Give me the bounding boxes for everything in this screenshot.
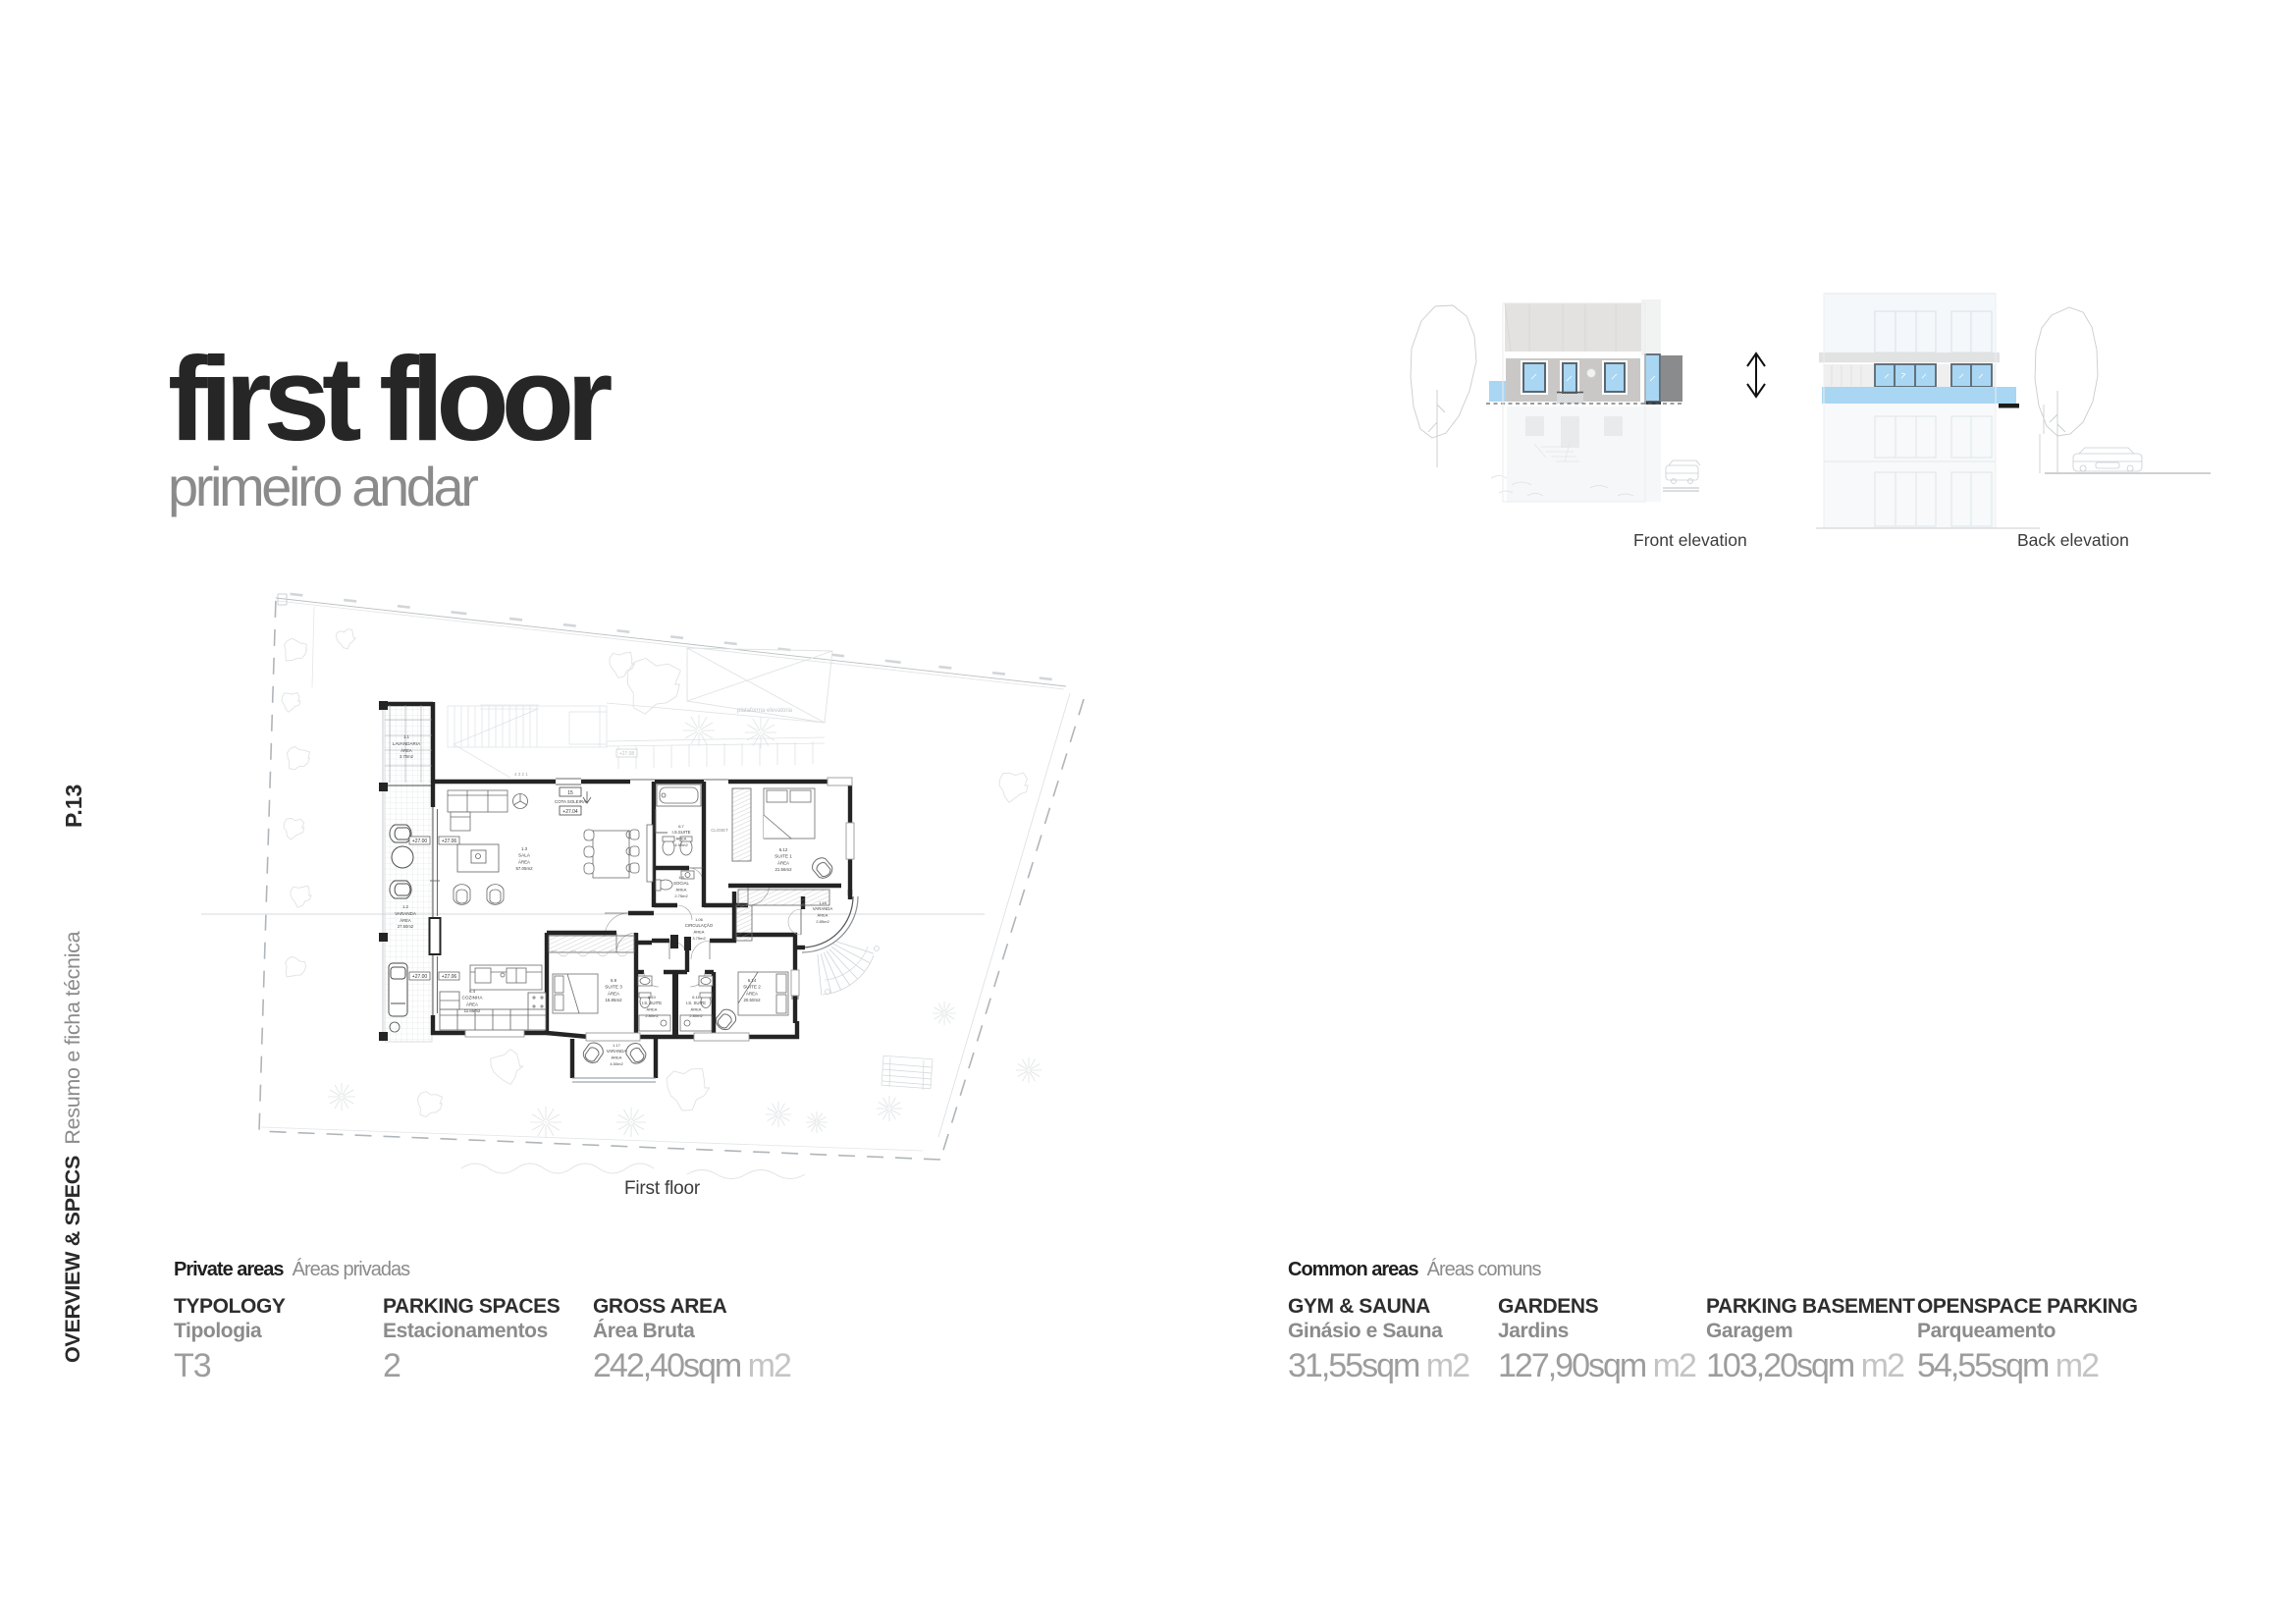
svg-text:+27.06: +27.06 <box>442 839 457 844</box>
svg-text:ÁREA: ÁREA <box>818 913 828 918</box>
svg-text:VARANDA: VARANDA <box>395 911 417 916</box>
svg-text:6.11: 6.11 <box>692 995 700 1000</box>
svg-text:ÁREA: ÁREA <box>676 837 687 841</box>
svg-text:20.50m2: 20.50m2 <box>743 998 761 1002</box>
svg-text:1.06: 1.06 <box>695 917 704 922</box>
svg-text:15.85m2: 15.85m2 <box>605 998 622 1002</box>
svg-text:+27.00: +27.00 <box>412 839 428 844</box>
svg-text:1.5: 1.5 <box>678 875 684 880</box>
svg-text:1.2: 1.2 <box>402 904 408 909</box>
svg-text:+27.04: +27.04 <box>562 809 578 815</box>
svg-text:4.50m2: 4.50m2 <box>610 1061 623 1066</box>
svg-text:1.16: 1.16 <box>819 900 828 905</box>
svg-text:3.75m2: 3.75m2 <box>692 936 706 941</box>
svg-text:LAVANDARIA: LAVANDARIA <box>393 741 421 746</box>
svg-text:ÁREA: ÁREA <box>676 888 687 893</box>
svg-text:2.85m2: 2.85m2 <box>816 919 829 924</box>
svg-text:ÁREA: ÁREA <box>777 861 789 866</box>
svg-text:ÁREA: ÁREA <box>400 918 411 923</box>
svg-text:VARANDA: VARANDA <box>607 1049 627 1054</box>
svg-text:ÁREA: ÁREA <box>647 1007 658 1012</box>
svg-text:6.12: 6.12 <box>779 847 788 852</box>
svg-text:2.80m2: 2.80m2 <box>645 1013 659 1018</box>
svg-text:SUITE 3: SUITE 3 <box>605 985 622 990</box>
svg-text:1.3: 1.3 <box>521 846 528 851</box>
svg-text:SALA: SALA <box>518 853 531 858</box>
svg-text:ÁREA: ÁREA <box>612 1056 622 1060</box>
svg-text:6.4: 6.4 <box>469 989 476 994</box>
svg-text:plataforma elevatória: plataforma elevatória <box>737 708 793 714</box>
svg-text:SUITE 2: SUITE 2 <box>743 985 761 990</box>
svg-text:1.1: 1.1 <box>403 734 409 739</box>
svg-text:21.56m2: 21.56m2 <box>774 867 792 872</box>
svg-text:I.S.SUITE: I.S.SUITE <box>671 830 690 835</box>
svg-text:ÁREA: ÁREA <box>518 860 530 865</box>
svg-text:57.05m2: 57.05m2 <box>515 866 533 871</box>
svg-text:3.70m2: 3.70m2 <box>400 754 414 759</box>
svg-text:+27.00: +27.00 <box>412 974 428 980</box>
svg-text:+27.08: +27.08 <box>619 751 635 757</box>
svg-text:4 3 2 1: 4 3 2 1 <box>514 772 528 777</box>
svg-text:ÁREA: ÁREA <box>608 992 619 997</box>
svg-text:I.S. SUITE: I.S. SUITE <box>686 1001 706 1005</box>
svg-text:ÁREA: ÁREA <box>691 1007 702 1012</box>
svg-text:15: 15 <box>567 790 573 796</box>
svg-text:6.9: 6.9 <box>611 978 617 983</box>
svg-text:VARANDA: VARANDA <box>813 906 833 911</box>
svg-text:CLOSET: CLOSET <box>711 828 728 833</box>
svg-text:6.10: 6.10 <box>648 995 657 1000</box>
svg-text:COTA SOLEIRA: COTA SOLEIRA <box>555 799 586 804</box>
svg-text:2.75m2: 2.75m2 <box>674 893 688 898</box>
svg-text:I.S. SUITE: I.S. SUITE <box>642 1001 662 1005</box>
svg-text:ÁREA: ÁREA <box>466 1002 478 1007</box>
svg-text:SUITE 1: SUITE 1 <box>774 854 792 859</box>
svg-text:ÁREA: ÁREA <box>400 748 412 753</box>
svg-text:CIRCULAÇÃO: CIRCULAÇÃO <box>685 923 714 928</box>
svg-text:1.17: 1.17 <box>613 1043 621 1048</box>
svg-text:6.14: 6.14 <box>748 978 757 983</box>
svg-text:ÁREA: ÁREA <box>746 992 758 997</box>
svg-text:2.80m2: 2.80m2 <box>689 1013 703 1018</box>
svg-text:+27.06: +27.06 <box>442 974 457 980</box>
svg-text:11.65m2: 11.65m2 <box>464 1008 481 1013</box>
svg-text:SOCIAL: SOCIAL <box>673 881 689 886</box>
svg-text:COZINHA: COZINHA <box>461 996 483 1001</box>
svg-text:27.50m2: 27.50m2 <box>398 924 414 929</box>
svg-text:4.90m2: 4.90m2 <box>674 842 688 847</box>
svg-text:ÁREA: ÁREA <box>694 930 705 935</box>
svg-text:6.7: 6.7 <box>678 824 684 829</box>
